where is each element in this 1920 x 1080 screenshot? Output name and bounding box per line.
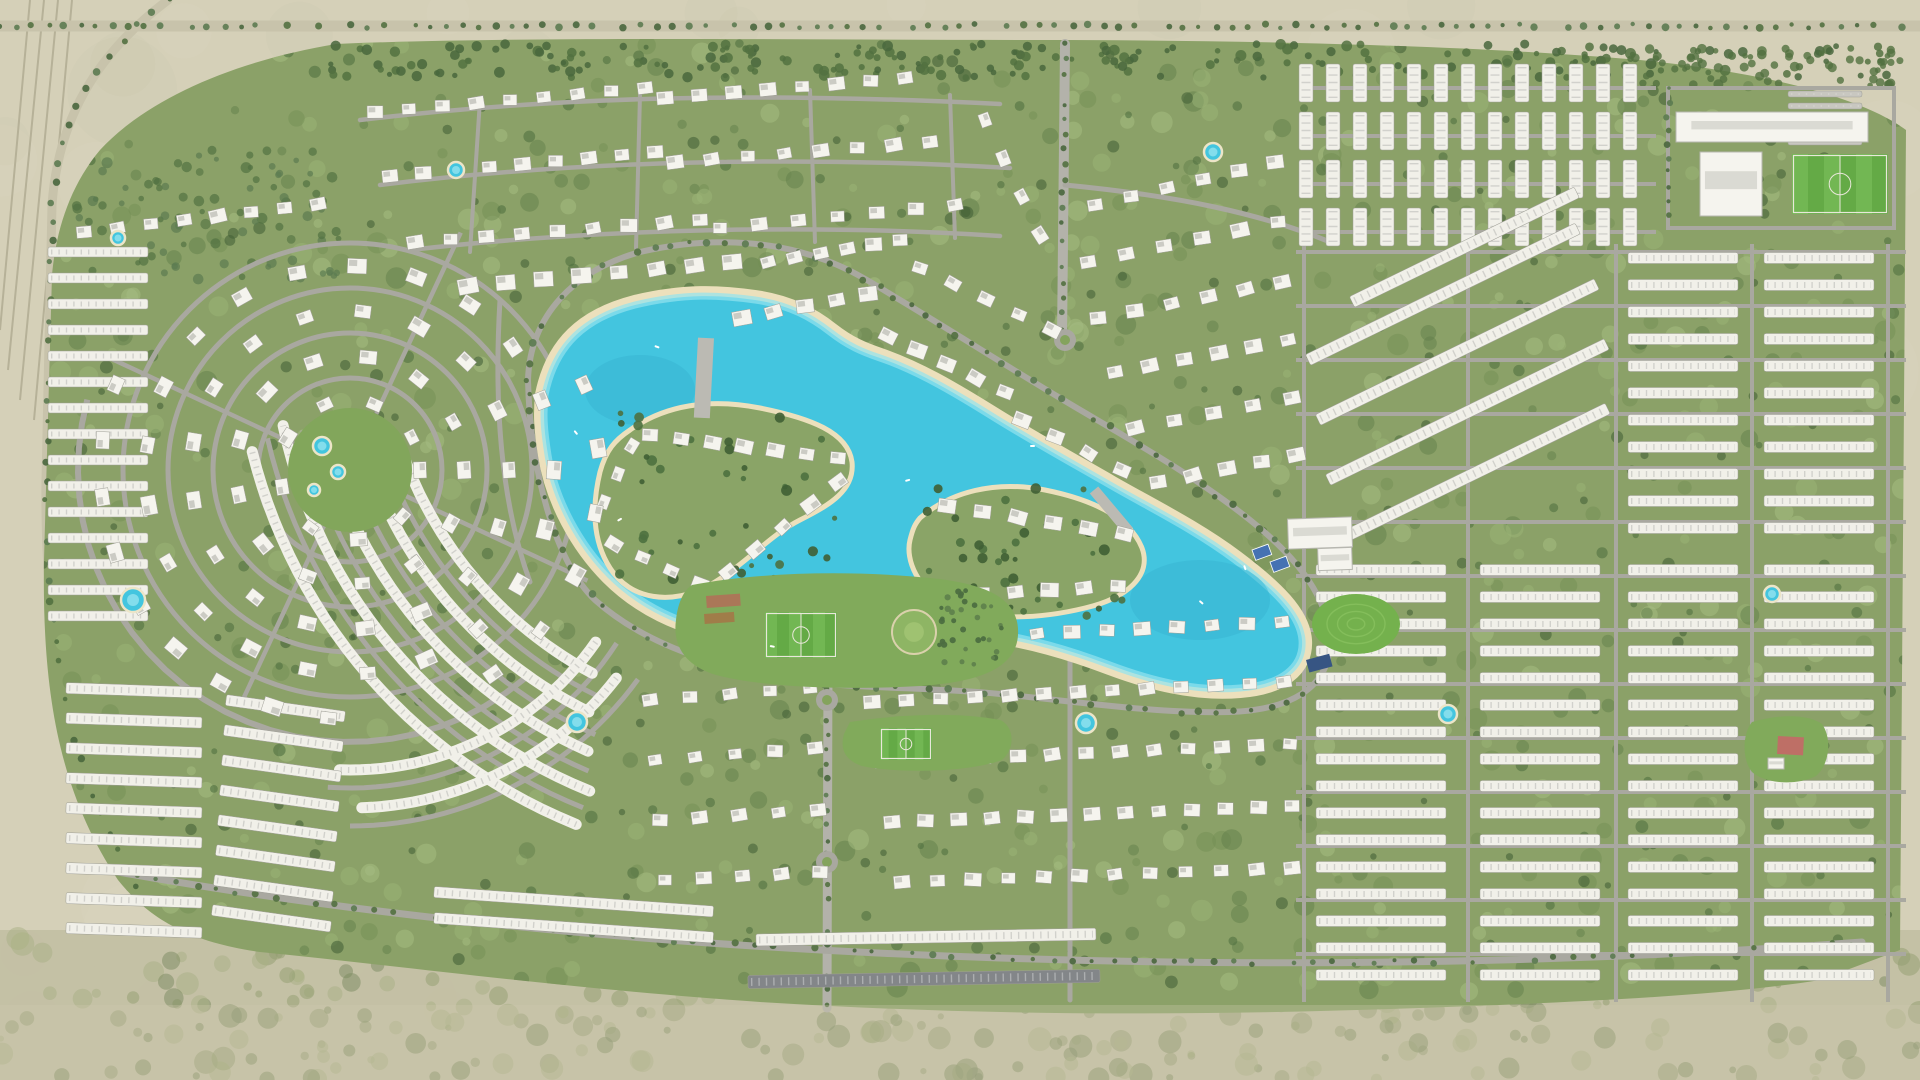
haze-overlay xyxy=(0,0,1920,1080)
master-plan-canvas xyxy=(0,0,1920,1080)
master-plan-map xyxy=(0,0,1920,1080)
